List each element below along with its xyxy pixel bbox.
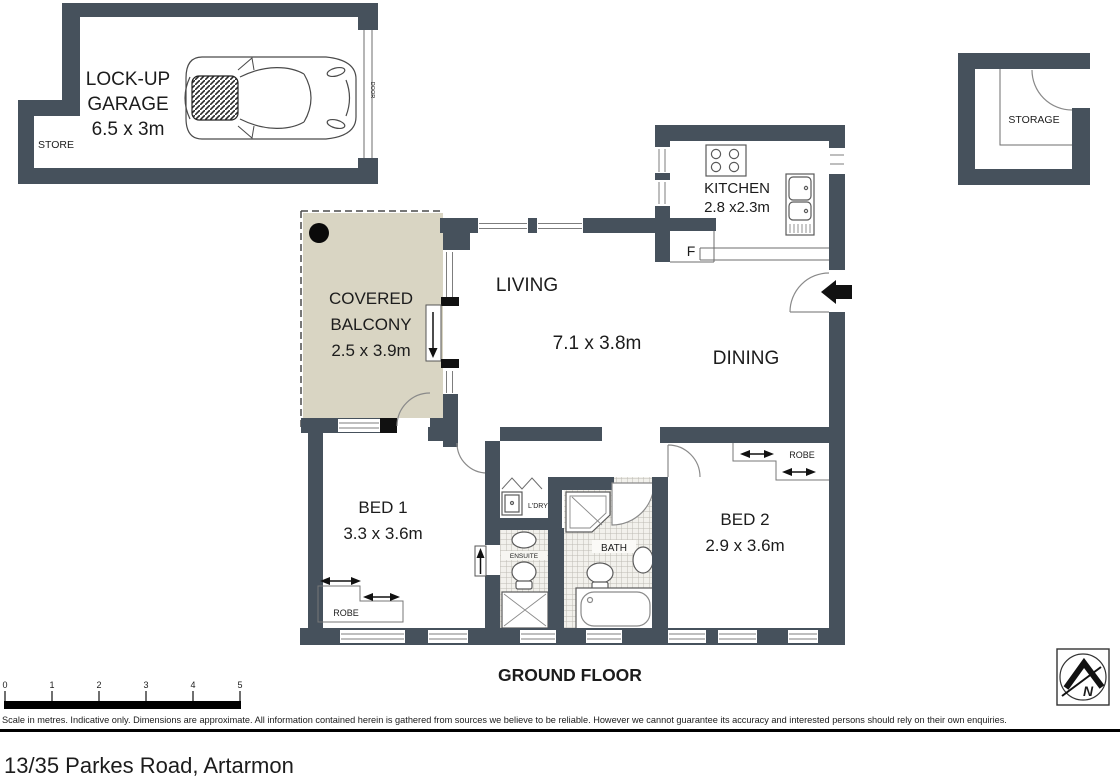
bed1-wall-left bbox=[308, 433, 323, 630]
garage-door-label: DOOR bbox=[369, 82, 375, 99]
balcony-dims: 2.5 x 3.9m bbox=[331, 341, 410, 360]
bed1-ensuite-wall-a bbox=[485, 441, 500, 545]
bed1-wall-top bbox=[428, 427, 457, 441]
door-panel bbox=[380, 418, 397, 433]
kitchen-label: KITCHEN bbox=[704, 180, 770, 197]
bed2-robe-arrow-bottom bbox=[782, 468, 816, 476]
ensuite-label: ENSUITE bbox=[510, 553, 539, 560]
laundry-label: L'DRY bbox=[528, 503, 548, 510]
bath-wall-top bbox=[562, 477, 614, 490]
fridge-label: F bbox=[687, 243, 696, 259]
unit-wall-right bbox=[829, 312, 845, 645]
bed1-robe-label: ROBE bbox=[333, 608, 359, 618]
bed2-dims: 2.9 x 3.6m bbox=[705, 536, 784, 555]
storage-shelf-outline bbox=[1000, 69, 1072, 145]
balcony-column bbox=[309, 223, 329, 243]
ensuite-shower-icon bbox=[502, 592, 548, 628]
scale-tick-label: 1 bbox=[49, 680, 54, 690]
window bbox=[338, 419, 380, 432]
living-wall-top-b bbox=[528, 218, 537, 233]
garage-wall-corner-tr bbox=[358, 3, 378, 30]
storage-wall-bottom bbox=[958, 169, 1090, 185]
bed1-door-arc bbox=[457, 443, 487, 473]
kitchen-wall-right-a bbox=[829, 141, 845, 148]
north-compass-icon: N bbox=[1057, 649, 1109, 705]
bed1-cavity-slider bbox=[475, 546, 486, 576]
door-opening bbox=[397, 418, 430, 433]
scale-bar: 0 1 2 3 4 5 bbox=[2, 680, 242, 709]
bed1-ensuite-wall-b bbox=[485, 575, 500, 630]
kitchen: F KITCHEN 2.8 x2.3m bbox=[655, 125, 845, 270]
scale-tick-label: 5 bbox=[237, 680, 242, 690]
bed1-robe-arrow-bottom bbox=[363, 593, 400, 601]
bath-label: BATH bbox=[601, 543, 627, 554]
entry-arrow-icon bbox=[821, 280, 852, 304]
kitchen-dims: 2.8 x2.3m bbox=[704, 199, 770, 216]
ensuite-bath-wall bbox=[548, 528, 564, 630]
store-label: STORE bbox=[38, 139, 74, 151]
floorplan-canvas: DOOR LOCK-UP GARAGE 6.5 x 3m STORE STORA… bbox=[0, 0, 1120, 781]
bed1-room: BED 1 3.3 x 3.6m ROBE bbox=[308, 427, 500, 630]
laundry-tub-icon bbox=[502, 492, 522, 515]
bed2-door-arc bbox=[668, 445, 700, 477]
kitchen-wall-left-a bbox=[655, 125, 670, 147]
scale-bar-rect bbox=[4, 701, 241, 709]
bath-basin-icon bbox=[633, 547, 653, 573]
laundry-bifold-door bbox=[502, 478, 542, 489]
covered-balcony: COVERED BALCONY 2.5 x 3.9m bbox=[301, 211, 470, 447]
balcony-label-line2: BALCONY bbox=[330, 315, 411, 334]
living-dims: 7.1 x 3.8m bbox=[553, 333, 642, 354]
car-illustration bbox=[185, 57, 356, 139]
garage-wall-bottom bbox=[18, 168, 378, 184]
laundry-wall-bottom bbox=[500, 518, 548, 530]
storage-door-arc bbox=[1032, 70, 1072, 110]
scale-tick-label: 4 bbox=[190, 680, 195, 690]
bed2-robe-label: ROBE bbox=[789, 450, 815, 460]
storage-wall-right bbox=[1072, 108, 1090, 185]
scale-ticks bbox=[5, 691, 240, 701]
living-wall-bottom-a bbox=[500, 427, 602, 441]
balcony-label-line1: COVERED bbox=[329, 289, 413, 308]
living-wall-top-a bbox=[440, 218, 478, 233]
kitchen-wall-left-c bbox=[655, 206, 670, 262]
garage: DOOR LOCK-UP GARAGE 6.5 x 3m STORE bbox=[18, 3, 378, 184]
bed2-room: BED 2 2.9 x 3.6m ROBE bbox=[652, 443, 829, 630]
storage-room: STORAGE bbox=[958, 53, 1090, 185]
sink-icon bbox=[786, 174, 814, 235]
scale-tick-label: 2 bbox=[96, 680, 101, 690]
ensuite-basin-icon bbox=[512, 532, 536, 548]
kitchen-wall-left-b bbox=[655, 173, 670, 180]
garage-wall-left-lower bbox=[18, 100, 34, 184]
garage-wall-left-upper bbox=[62, 3, 80, 115]
bed1-dims: 3.3 x 3.6m bbox=[343, 524, 422, 543]
storage-wall-left bbox=[958, 53, 975, 185]
storage-label: STORAGE bbox=[1008, 114, 1059, 126]
living-wall-bottom-b bbox=[660, 427, 845, 443]
north-label: N bbox=[1083, 683, 1094, 699]
living-label: LIVING bbox=[496, 275, 558, 296]
garage-label-line1: LOCK-UP bbox=[86, 69, 170, 90]
floor-title: GROUND FLOOR bbox=[498, 665, 642, 685]
living-wall-top-c bbox=[583, 218, 670, 233]
bed1-robe-outline bbox=[318, 586, 403, 622]
bed2-wall-left bbox=[652, 477, 668, 630]
disclaimer-text: Scale in metres. Indicative only. Dimens… bbox=[2, 715, 1007, 725]
wet-areas: L'DRY ENSUITE BATH bbox=[500, 477, 654, 630]
kitchen-bench-line bbox=[700, 248, 829, 260]
kitchen-wall-top bbox=[655, 125, 845, 141]
bed2-label: BED 2 bbox=[720, 510, 769, 529]
ensuite-toilet-icon bbox=[512, 562, 536, 589]
bathtub-icon bbox=[576, 588, 654, 630]
dining-label: DINING bbox=[713, 348, 780, 369]
scale-tick-label: 3 bbox=[143, 680, 148, 690]
floorplan-page: DOOR LOCK-UP GARAGE 6.5 x 3m STORE STORA… bbox=[0, 0, 1120, 781]
bed1-label: BED 1 bbox=[358, 498, 407, 517]
scale-tick-label: 0 bbox=[2, 680, 7, 690]
address-text: 13/35 Parkes Road, Artarmon bbox=[4, 753, 294, 778]
footer-divider bbox=[0, 729, 1120, 732]
bed1-robe-arrow-top bbox=[320, 577, 361, 585]
garage-wall-top bbox=[62, 3, 358, 17]
slider-sill-bottom bbox=[441, 359, 459, 368]
slider-sill-top bbox=[441, 297, 459, 306]
fridge-nook-wall bbox=[670, 218, 716, 231]
bed2-robe-outline bbox=[733, 443, 829, 480]
garage-door: DOOR bbox=[364, 30, 375, 158]
bed2-robe-arrow-top bbox=[740, 450, 774, 458]
laundry-wall-right bbox=[548, 477, 562, 528]
unit-wall-bottom bbox=[300, 628, 845, 645]
garage-label-line2: GARAGE bbox=[87, 94, 168, 115]
garage-dims: 6.5 x 3m bbox=[92, 119, 165, 140]
storage-wall-top bbox=[958, 53, 1090, 69]
kitchen-wall-right-b bbox=[829, 174, 845, 270]
cooktop-icon bbox=[706, 145, 746, 176]
balcony-sliding-door bbox=[426, 305, 441, 361]
